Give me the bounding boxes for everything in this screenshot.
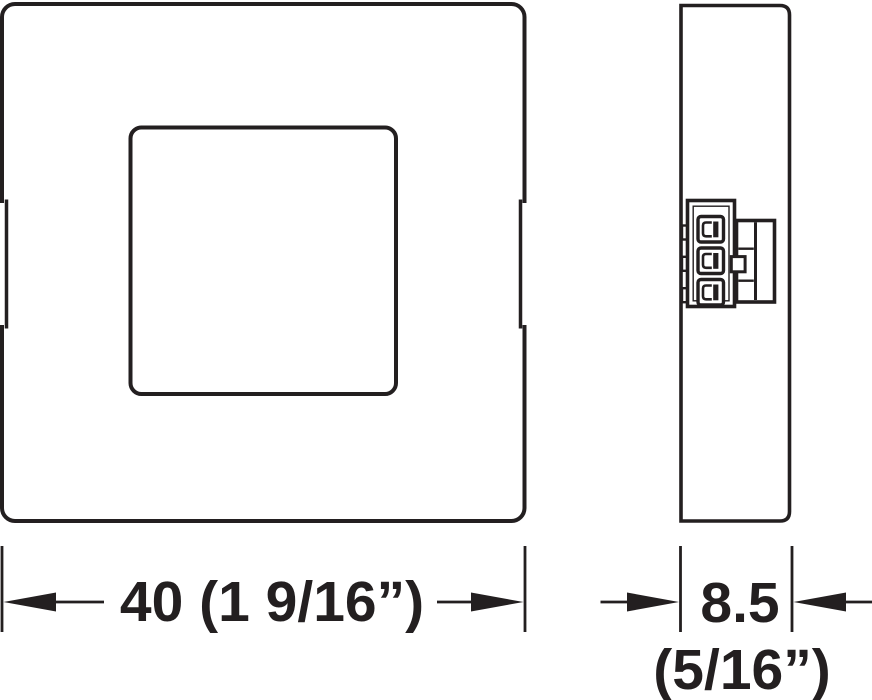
dimension-annotations: 40 (1 9/16”) 8.5 (5/16”) [2,546,872,700]
terminal-contact-bar [713,222,718,238]
width-dimension-label: 40 (1 9/16”) [120,570,424,634]
connector-terminal [698,280,724,306]
front-right-notch [520,200,529,329]
connector-key-square [731,257,745,272]
dimension-arrowhead-left-icon [794,593,847,612]
connector-terminal [698,217,724,243]
terminal-contact-bar [713,285,718,301]
width-dimension: 40 (1 9/16”) [4,570,524,634]
drawing-canvas: 40 (1 9/16”) 8.5 (5/16”) [0,0,872,700]
dimension-arrowhead-right-icon [627,593,679,612]
dimension-arrowhead-left-icon [4,593,57,612]
depth-dimension-secondary-label: (5/16”) [653,638,830,700]
depth-dimension: 8.5 (5/16”) [601,571,872,700]
front-left-notch [0,200,7,329]
front-lens-outline [131,128,397,395]
connector-terminal [698,248,724,274]
dimension-arrowhead-right-icon [471,593,524,612]
terminal-contact-bar [713,253,718,269]
depth-dimension-label: 8.5 [700,571,779,635]
front-view [0,4,529,521]
side-view [681,6,790,522]
technical-drawing: 40 (1 9/16”) 8.5 (5/16”) [0,0,872,700]
